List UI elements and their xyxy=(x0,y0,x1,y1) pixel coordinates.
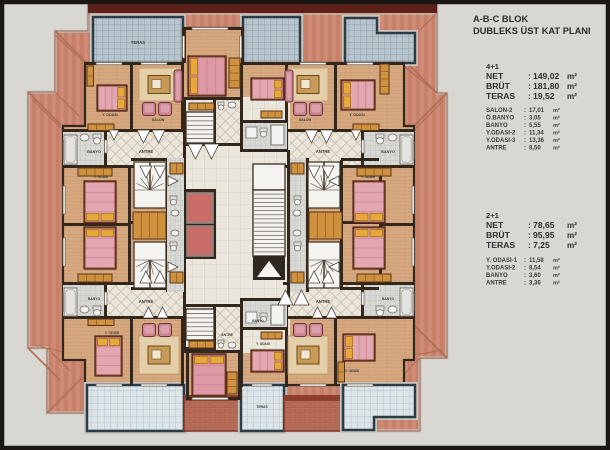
svg-text:NET: NET xyxy=(486,220,504,230)
svg-text::: : xyxy=(528,230,531,240)
svg-text::: : xyxy=(524,146,526,152)
svg-text:Y. ODASI-1: Y. ODASI-1 xyxy=(486,258,518,264)
svg-text:m²: m² xyxy=(567,82,577,91)
svg-text:m²: m² xyxy=(553,272,560,279)
svg-text::: : xyxy=(524,258,526,264)
svg-text:95,95: 95,95 xyxy=(533,230,555,240)
svg-text:A-B-C BLOK: A-B-C BLOK xyxy=(473,14,529,24)
svg-text:Y.ODASI-2: Y.ODASI-2 xyxy=(486,266,516,272)
svg-text:ANTRE: ANTRE xyxy=(486,146,507,152)
svg-text:m²: m² xyxy=(553,130,560,137)
svg-text::: : xyxy=(524,108,526,114)
svg-text::: : xyxy=(528,71,531,81)
svg-text:m²: m² xyxy=(553,145,560,152)
svg-text::: : xyxy=(528,240,531,250)
svg-text:3,05: 3,05 xyxy=(529,116,541,122)
svg-text:m²: m² xyxy=(553,115,560,122)
svg-text:78,65: 78,65 xyxy=(533,220,555,230)
svg-text::: : xyxy=(528,91,531,101)
svg-text:m²: m² xyxy=(567,221,577,230)
svg-text:SALON: SALON xyxy=(299,118,312,122)
svg-text:BRÜT: BRÜT xyxy=(486,230,511,240)
svg-text:BRÜT: BRÜT xyxy=(486,81,511,91)
svg-text:m²: m² xyxy=(553,107,560,114)
svg-text:Y. ODASI: Y. ODASI xyxy=(202,349,216,353)
svg-text:SALON-2: SALON-2 xyxy=(486,108,513,114)
svg-text:ANTRE: ANTRE xyxy=(316,299,331,304)
svg-text:ANTRE: ANTRE xyxy=(316,149,331,154)
svg-text::: : xyxy=(524,116,526,122)
svg-text:m²: m² xyxy=(553,257,560,264)
svg-text:17,01: 17,01 xyxy=(529,108,545,114)
svg-text:Y. ODASI: Y. ODASI xyxy=(345,369,360,373)
svg-text:3,36: 3,36 xyxy=(529,281,541,287)
svg-text::: : xyxy=(524,266,526,272)
svg-text:3,60: 3,60 xyxy=(529,273,541,279)
svg-text:Y. ODASI: Y. ODASI xyxy=(94,175,109,179)
svg-text::: : xyxy=(524,131,526,137)
svg-text::: : xyxy=(524,123,526,129)
svg-text::: : xyxy=(524,138,526,144)
svg-text:m²: m² xyxy=(553,280,560,287)
svg-text:BANYO: BANYO xyxy=(381,150,395,154)
svg-text:5,55: 5,55 xyxy=(529,123,541,129)
svg-text:149,02: 149,02 xyxy=(533,71,560,81)
svg-text:TERAS: TERAS xyxy=(486,91,515,101)
svg-text:m²: m² xyxy=(553,265,560,272)
svg-text:7,25: 7,25 xyxy=(533,240,550,250)
svg-text:NET: NET xyxy=(486,71,504,81)
svg-text:BANYO: BANYO xyxy=(252,319,264,323)
svg-text::: : xyxy=(528,81,531,91)
svg-text:8,54: 8,54 xyxy=(529,266,541,272)
svg-text:ANTRE: ANTRE xyxy=(486,281,507,287)
svg-text:BANYO: BANYO xyxy=(88,297,101,301)
svg-text:BANYO: BANYO xyxy=(382,297,395,301)
svg-text:TERAS: TERAS xyxy=(486,240,515,250)
svg-text:BANYO: BANYO xyxy=(486,123,508,129)
svg-text:11,58: 11,58 xyxy=(529,258,544,264)
svg-text:Y.ODASI-2: Y.ODASI-2 xyxy=(486,131,516,137)
svg-text:4+1: 4+1 xyxy=(486,62,500,71)
svg-text:BANYO: BANYO xyxy=(486,273,508,279)
svg-text:DUBLEKS ÜST KAT PLANI: DUBLEKS ÜST KAT PLANI xyxy=(473,26,591,36)
svg-text:BANYO: BANYO xyxy=(87,150,101,154)
svg-text:Y. ODASI: Y. ODASI xyxy=(105,331,120,335)
svg-text:8,50: 8,50 xyxy=(529,146,541,152)
svg-text:m²: m² xyxy=(567,231,577,240)
svg-text:181,80: 181,80 xyxy=(533,81,560,91)
svg-text::: : xyxy=(524,273,526,279)
svg-text:Y. ODASI: Y. ODASI xyxy=(361,175,376,179)
svg-text:m²: m² xyxy=(567,72,577,81)
svg-text:Y.ODASI-3: Y.ODASI-3 xyxy=(486,138,516,144)
svg-text:Y. ODASI: Y. ODASI xyxy=(102,113,117,117)
svg-text::: : xyxy=(528,220,531,230)
svg-text:19,52: 19,52 xyxy=(533,91,555,101)
svg-text:ANTRE: ANTRE xyxy=(139,149,154,154)
svg-text:m²: m² xyxy=(567,92,577,101)
svg-text:13,36: 13,36 xyxy=(529,138,545,144)
svg-text:m²: m² xyxy=(553,122,560,129)
svg-text:m²: m² xyxy=(553,137,560,144)
svg-text:m²: m² xyxy=(567,241,577,250)
svg-text:SALON: SALON xyxy=(152,118,165,122)
svg-text::: : xyxy=(524,281,526,287)
svg-text:2+1: 2+1 xyxy=(486,211,500,220)
svg-text:TERAS: TERAS xyxy=(256,405,268,409)
svg-text:TERAS: TERAS xyxy=(131,40,145,45)
svg-text:11,34: 11,34 xyxy=(529,131,544,137)
svg-text:Y. ODASI: Y. ODASI xyxy=(256,342,270,346)
svg-text:Y. ODASI: Y. ODASI xyxy=(349,113,364,117)
svg-text:ANTRE: ANTRE xyxy=(221,333,233,337)
svg-text:Ö.BANYO: Ö.BANYO xyxy=(486,115,514,122)
svg-text:ANTRE: ANTRE xyxy=(139,299,154,304)
